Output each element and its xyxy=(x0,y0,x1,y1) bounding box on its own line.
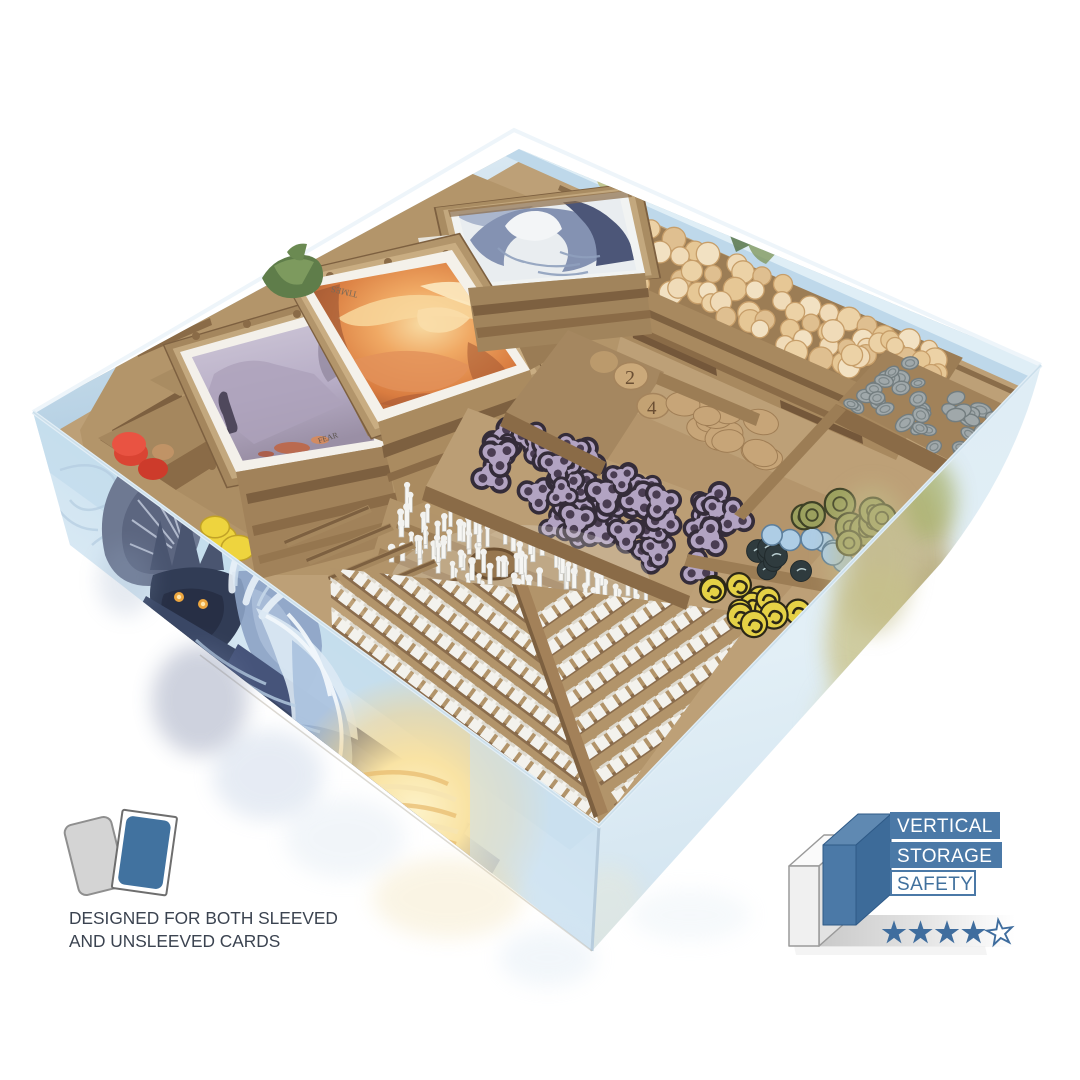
svg-text:VERTICAL: VERTICAL xyxy=(897,816,993,837)
svg-text:AND UNSLEEVED CARDS: AND UNSLEEVED CARDS xyxy=(69,931,280,951)
svg-text:4: 4 xyxy=(647,398,657,419)
svg-text:SAFETY: SAFETY xyxy=(897,874,973,895)
svg-text:DESIGNED FOR BOTH SLEEVED: DESIGNED FOR BOTH SLEEVED xyxy=(69,908,338,928)
svg-text:STORAGE: STORAGE xyxy=(897,846,992,867)
svg-text:2: 2 xyxy=(625,367,635,389)
